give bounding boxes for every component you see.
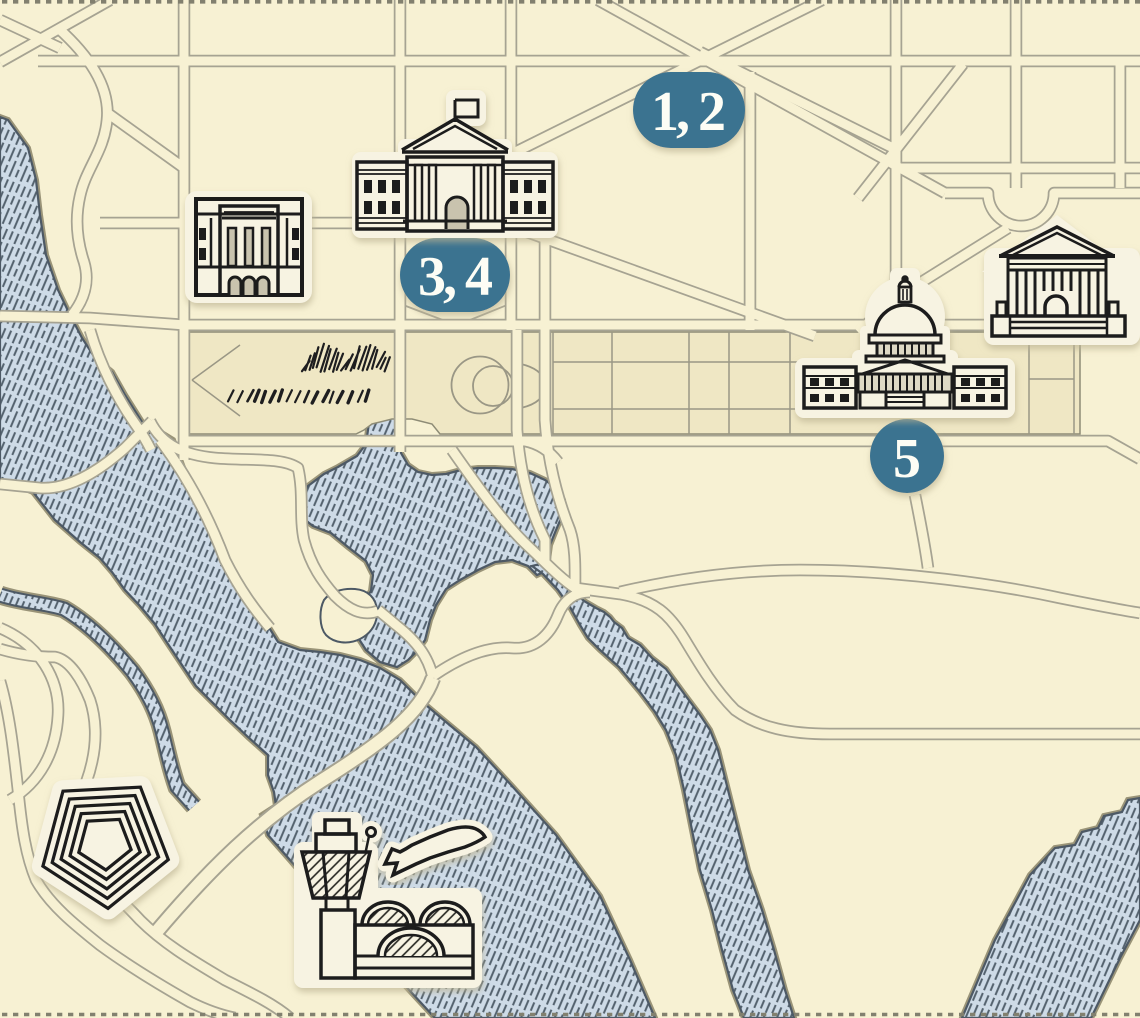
svg-text:3, 4: 3, 4 [418, 246, 492, 308]
svg-text:5: 5 [893, 428, 921, 490]
svg-text:1, 2: 1, 2 [651, 81, 724, 143]
